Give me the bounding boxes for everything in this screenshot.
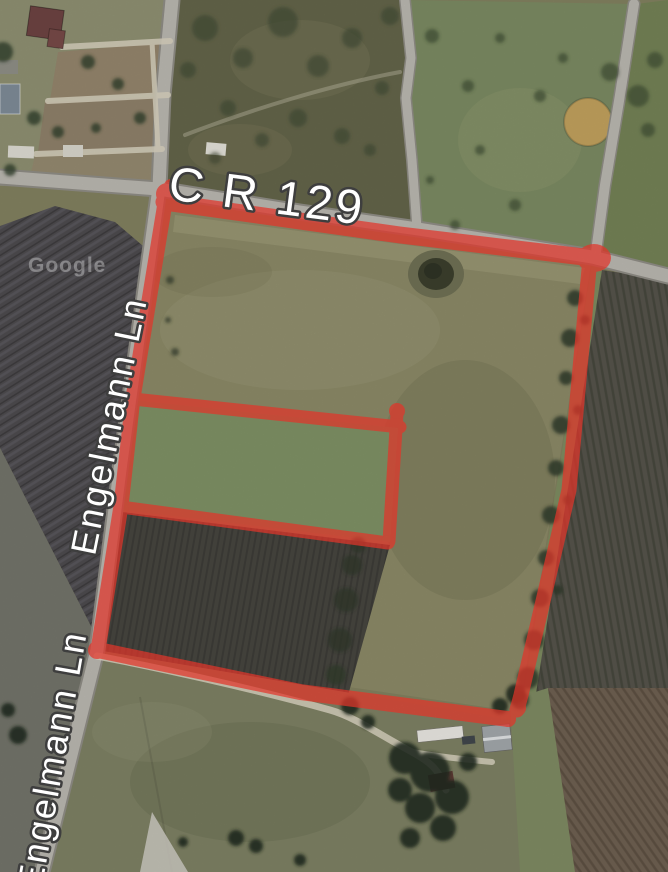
satellite-map[interactable]: Google C R 129 Engelmann Ln Engelmann Ln (0, 0, 668, 872)
inner-line-vertical[interactable] (389, 413, 397, 541)
map-canvas[interactable]: Google C R 129 Engelmann Ln Engelmann Ln (0, 0, 668, 872)
google-watermark: Google (28, 254, 106, 277)
